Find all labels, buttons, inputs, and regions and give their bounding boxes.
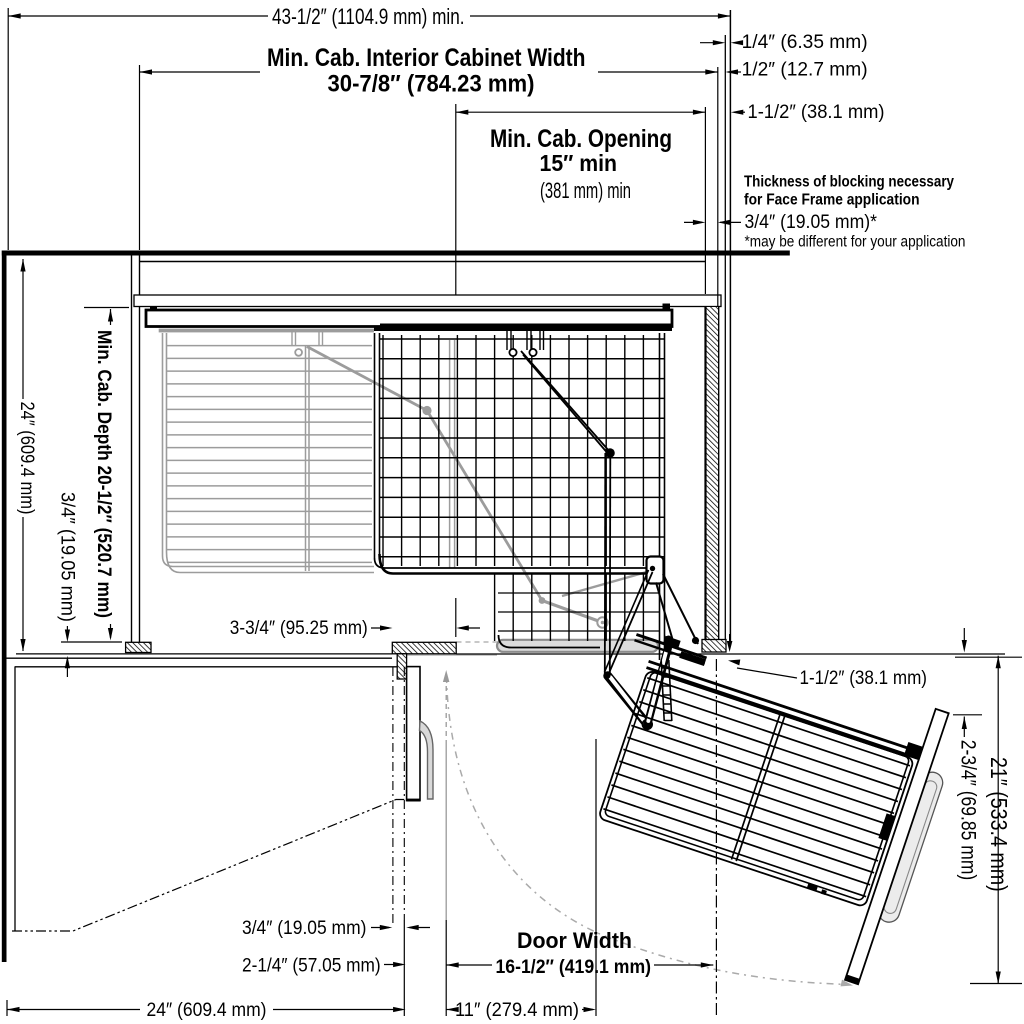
- svg-text:24″ (609.4 mm): 24″ (609.4 mm): [16, 402, 38, 515]
- svg-text:1/2″ (12.7 mm): 1/2″ (12.7 mm): [742, 59, 868, 81]
- svg-text:24″ (609.4 mm): 24″ (609.4 mm): [147, 999, 267, 1021]
- svg-text:Min. Cab. Opening: Min. Cab. Opening: [490, 125, 672, 153]
- svg-text:15″ min: 15″ min: [540, 150, 618, 176]
- svg-text:1/4″ (6.35 mm): 1/4″ (6.35 mm): [742, 31, 868, 53]
- svg-text:Min. Cab. Interior Cabinet Wid: Min. Cab. Interior Cabinet Width: [267, 44, 586, 72]
- svg-text:16-1/2″ (419.1 mm): 16-1/2″ (419.1 mm): [496, 956, 652, 978]
- svg-text:21″ (533.4 mm): 21″ (533.4 mm): [986, 757, 1012, 892]
- svg-text:Door Width: Door Width: [517, 928, 632, 953]
- svg-text:2-1/4″ (57.05 mm): 2-1/4″ (57.05 mm): [242, 955, 381, 977]
- svg-text:for Face Frame application: for Face Frame application: [744, 192, 920, 209]
- svg-text:3/4″ (19.05 mm)*: 3/4″ (19.05 mm)*: [745, 211, 878, 233]
- svg-text:30-7/8″ (784.23 mm): 30-7/8″ (784.23 mm): [328, 71, 535, 98]
- svg-text:1-1/2″ (38.1 mm): 1-1/2″ (38.1 mm): [748, 101, 885, 123]
- svg-text:Thickness of blocking necessar: Thickness of blocking necessary: [744, 174, 954, 191]
- svg-text:3/4″ (19.05 mm): 3/4″ (19.05 mm): [57, 492, 79, 622]
- svg-text:43-1/2″ (1104.9 mm) min.: 43-1/2″ (1104.9 mm) min.: [272, 4, 465, 29]
- svg-text:2-3/4″ (69.85 mm): 2-3/4″ (69.85 mm): [956, 740, 979, 881]
- svg-text:*may be different for your app: *may be different for your application: [745, 234, 966, 251]
- svg-text:1-1/2″ (38.1 mm): 1-1/2″ (38.1 mm): [800, 667, 928, 689]
- svg-text:3/4″ (19.05 mm): 3/4″ (19.05 mm): [242, 917, 366, 939]
- svg-text:11″ (279.4 mm): 11″ (279.4 mm): [455, 999, 579, 1021]
- svg-text:Min. Cab. Depth 20-1/2″ (520.7: Min. Cab. Depth 20-1/2″ (520.7 mm): [93, 330, 115, 618]
- svg-text:(381 mm) min: (381 mm) min: [540, 178, 631, 203]
- svg-text:3-3/4″ (95.25 mm): 3-3/4″ (95.25 mm): [230, 617, 368, 639]
